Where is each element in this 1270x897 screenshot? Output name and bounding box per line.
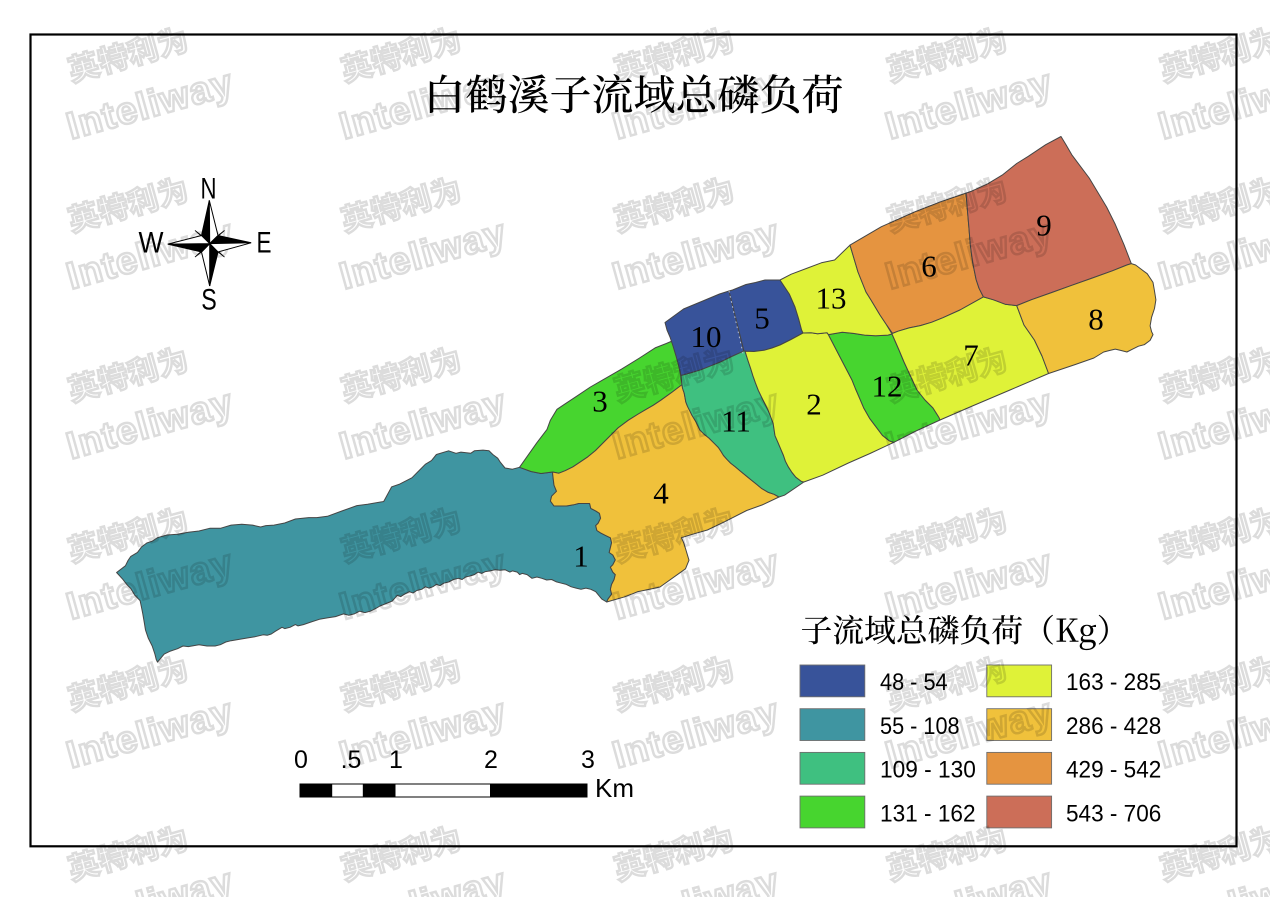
svg-text:286 - 428: 286 - 428 xyxy=(1066,713,1161,740)
svg-text:5: 5 xyxy=(754,301,770,336)
svg-text:543 - 706: 543 - 706 xyxy=(1066,800,1161,827)
svg-text:8: 8 xyxy=(1088,302,1104,337)
svg-text:131 - 162: 131 - 162 xyxy=(880,800,976,827)
svg-text:Km: Km xyxy=(595,773,634,803)
svg-text:3: 3 xyxy=(592,384,608,419)
svg-text:2: 2 xyxy=(806,387,822,422)
svg-text:S: S xyxy=(201,283,217,316)
svg-text:6: 6 xyxy=(921,249,937,284)
svg-text:E: E xyxy=(257,226,272,259)
svg-text:13: 13 xyxy=(816,281,847,316)
svg-text:12: 12 xyxy=(872,369,903,404)
svg-text:W: W xyxy=(139,226,165,259)
svg-text:163 - 285: 163 - 285 xyxy=(1066,669,1161,696)
svg-text:3: 3 xyxy=(581,746,595,774)
svg-text:7: 7 xyxy=(963,338,979,373)
svg-text:4: 4 xyxy=(653,476,669,511)
svg-text:429 - 542: 429 - 542 xyxy=(1066,757,1161,784)
svg-text:0: 0 xyxy=(294,746,308,774)
svg-text:9: 9 xyxy=(1036,208,1052,243)
svg-text:2: 2 xyxy=(484,746,498,774)
svg-text:1: 1 xyxy=(573,539,589,574)
svg-text:N: N xyxy=(201,173,217,206)
svg-text:11: 11 xyxy=(721,404,751,439)
svg-text:10: 10 xyxy=(691,319,722,354)
